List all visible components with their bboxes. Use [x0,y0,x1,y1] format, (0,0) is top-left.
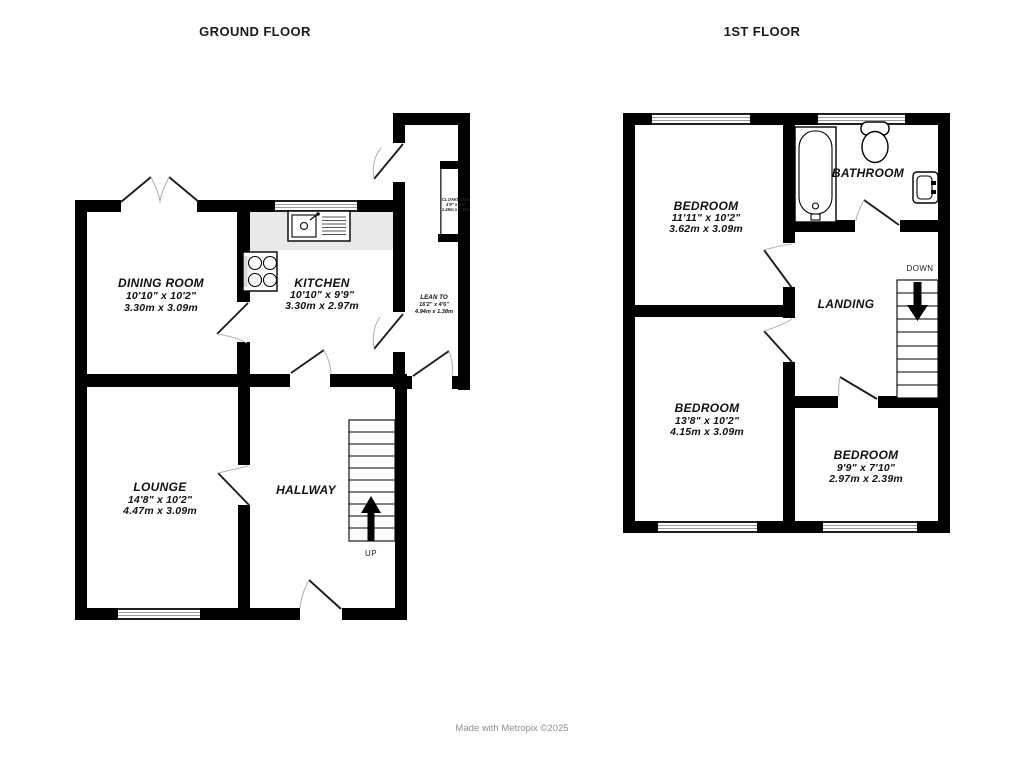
wall [197,200,275,212]
door-swing-arc [151,177,160,203]
wall [395,387,407,620]
wall [238,505,250,620]
door-swing-arc [300,580,309,608]
lean-to-dim-imperial: 16'2" x 4'6" [419,302,449,308]
first-floor-plan: DOWN BEDROOM 11'11" x 10'2" 3.62m x 3.09… [623,113,950,533]
bedroom1-label: BEDROOM [674,199,739,213]
window [118,609,200,619]
basin-tap [931,181,936,185]
wall [783,125,795,243]
landing-label: LANDING [818,297,875,311]
window [652,114,750,124]
door-swing-arc [217,334,247,343]
wall [795,396,838,408]
window [275,201,357,211]
ground-floor-plan: CLOAKROOM 4'9" x 4'6" 1.45m x 1.38m [75,113,470,620]
wall [393,113,405,143]
bedroom3-label: BEDROOM [834,448,899,462]
ground-floor-title: GROUND FLOOR [199,24,311,39]
stairs-down: DOWN [897,264,938,398]
bedroom2-label: BEDROOM [675,401,740,415]
kitchen-sink [288,211,350,241]
up-label: UP [365,549,377,558]
wall [237,342,250,376]
lean-to-dim-metric: 4.94m x 1.38m [414,309,453,315]
down-label: DOWN [907,264,934,273]
door-leaf [864,200,899,225]
door-swing-arc [764,244,792,250]
wall [75,608,118,620]
wall [905,113,950,125]
wall [75,200,121,212]
wall [623,521,658,533]
cloakroom-dim-metric: 1.45m x 1.38m [442,207,471,212]
wall [750,113,818,125]
bathtub-outline [795,127,836,222]
bathtub [795,127,836,222]
wall [438,234,458,242]
lounge-dim-metric: 4.47m x 3.09m [122,505,197,517]
door-leaf [169,177,199,202]
wall [75,200,87,620]
wall [900,220,938,232]
wall [623,113,635,533]
window [823,522,917,532]
wall [917,521,950,533]
door-leaf [217,303,248,334]
window [658,522,757,532]
wall [238,387,250,465]
stove-knobs [244,256,248,287]
first-floor-title: 1ST FLOOR [724,24,801,39]
hallway-label: HALLWAY [276,483,337,497]
bathroom-basin [913,172,938,203]
door-swing-arc [839,377,840,396]
lean-to-label: LEAN TO [420,294,448,301]
stove-body [243,252,277,291]
wall [452,376,470,389]
door-leaf [374,144,403,179]
lounge-label: LOUNGE [133,480,187,494]
wall [783,362,795,521]
door-swing-arc [856,200,864,221]
wall [635,305,795,317]
window [818,114,905,124]
wall [393,376,412,389]
door-leaf [764,331,792,362]
floorplan-page: GROUND FLOOR 1ST FLOOR Made with Metropi… [0,0,1024,774]
door-swing-arc [218,466,248,473]
wall [938,113,950,533]
kitchen-dim-metric: 3.30m x 2.97m [285,300,359,312]
wall [623,113,652,125]
door-swing-arc [449,351,453,376]
dining-room-label: DINING ROOM [118,276,205,290]
toilet-bowl [862,132,888,163]
wall [200,608,300,620]
bedroom1-dim-metric: 3.62m x 3.09m [669,223,743,235]
wall [393,182,405,312]
stairs-up: UP [349,420,395,558]
door-leaf [309,580,341,609]
wall [757,521,823,533]
basin-tap [931,190,936,194]
floorplan-canvas: GROUND FLOOR 1ST FLOOR Made with Metropi… [0,0,1024,774]
door-swing-arc [324,350,331,373]
dining-room-dim-imperial: 10'10" x 10'2" [126,290,197,302]
door-leaf [840,377,877,399]
stove [243,252,277,291]
door-swing-arc [764,319,792,331]
wall [342,608,407,620]
dining-room-dim-metric: 3.30m x 3.09m [124,302,198,314]
bedroom2-dim-metric: 4.15m x 3.09m [669,426,744,438]
bedroom3-dim-metric: 2.97m x 2.39m [828,473,903,485]
wall [87,374,290,387]
door-leaf [764,250,792,288]
door-leaf [218,473,249,505]
door-swing-arc [160,177,169,203]
metropix-credit: Made with Metropix ©2025 [455,723,568,734]
wall [440,161,458,169]
wall [393,352,405,376]
bathroom-label: BATHROOM [832,166,905,180]
kitchen-label: KITCHEN [294,276,349,290]
sink-faucet-head [316,212,320,216]
door-leaf [291,350,324,373]
wall [458,113,470,390]
toilet [861,122,889,163]
door-leaf [413,351,449,376]
door-leaf [121,177,151,202]
